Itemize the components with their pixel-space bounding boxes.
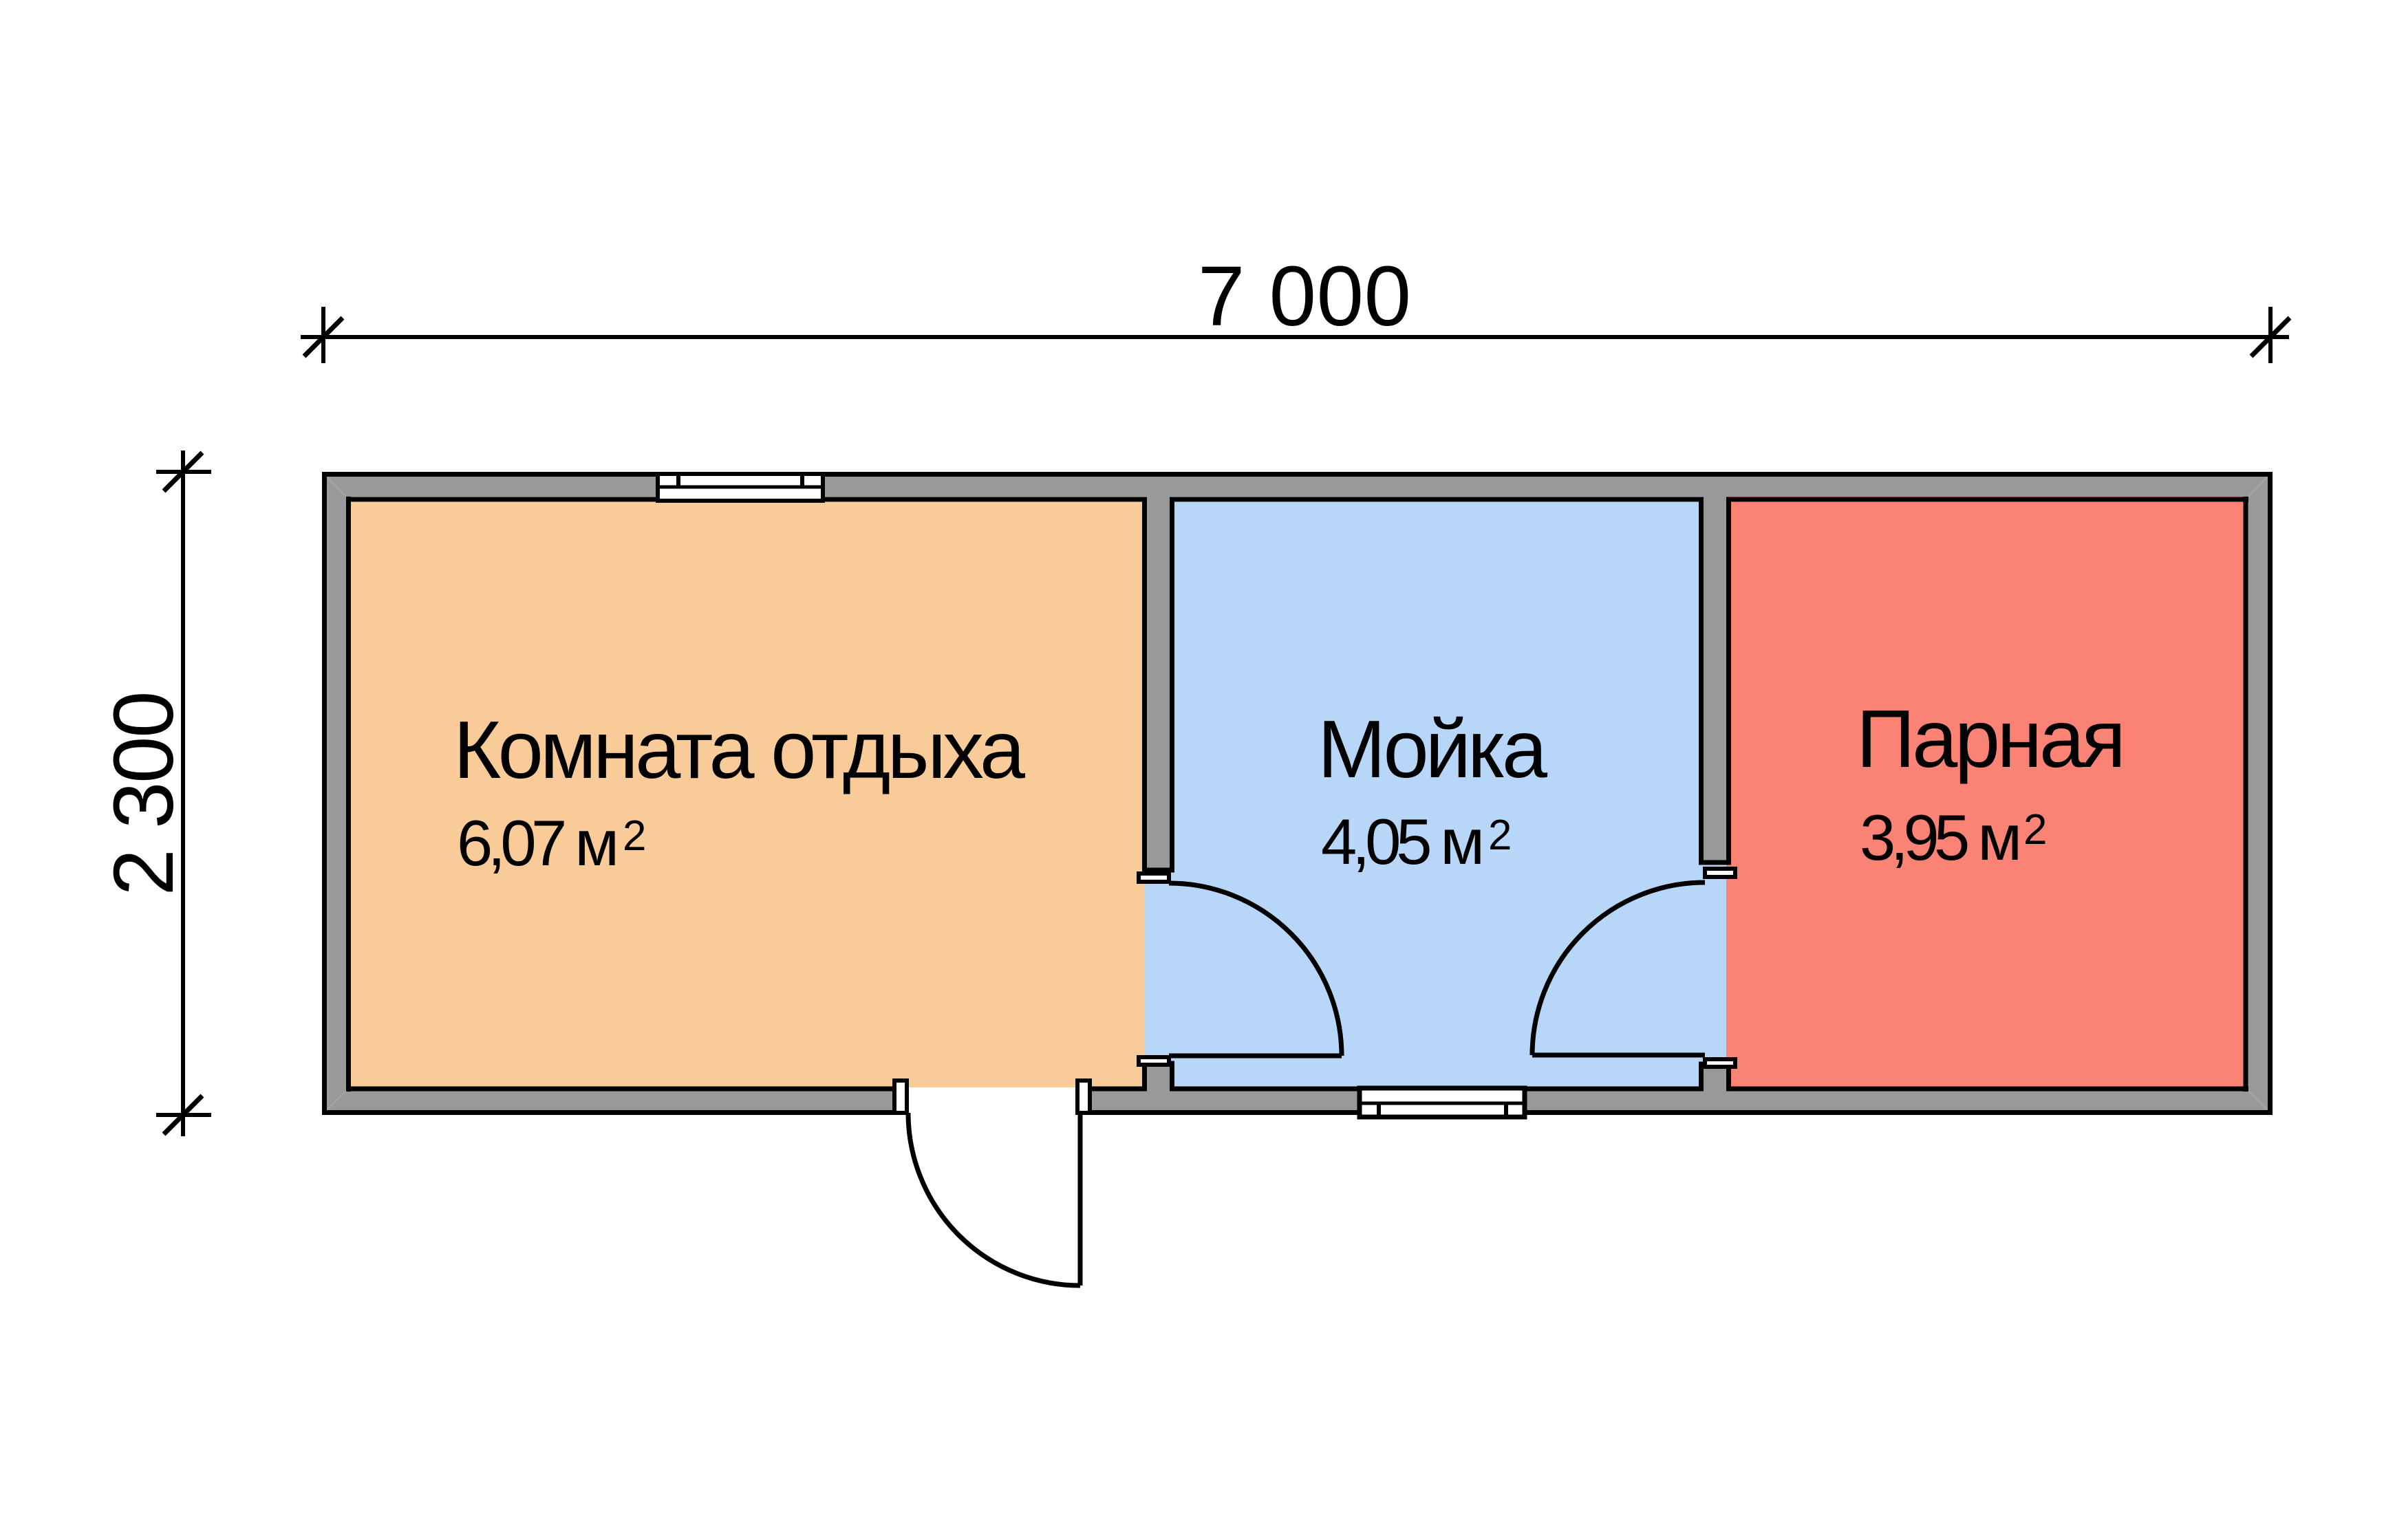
svg-text:7 000: 7 000 xyxy=(1198,250,1411,344)
svg-text:4,05 м: 4,05 м xyxy=(1321,805,1485,878)
svg-text:Комната отдыха: Комната отдыха xyxy=(453,704,1026,796)
svg-text:Парная: Парная xyxy=(1856,693,2126,785)
svg-text:6,07 м: 6,07 м xyxy=(457,807,619,879)
svg-text:2: 2 xyxy=(2023,806,2047,854)
svg-text:Мойка: Мойка xyxy=(1318,704,1548,795)
svg-text:2 300: 2 300 xyxy=(97,691,191,896)
svg-text:2: 2 xyxy=(1488,812,1512,859)
svg-text:3,95 м: 3,95 м xyxy=(1860,801,2022,874)
svg-text:2: 2 xyxy=(623,812,646,860)
